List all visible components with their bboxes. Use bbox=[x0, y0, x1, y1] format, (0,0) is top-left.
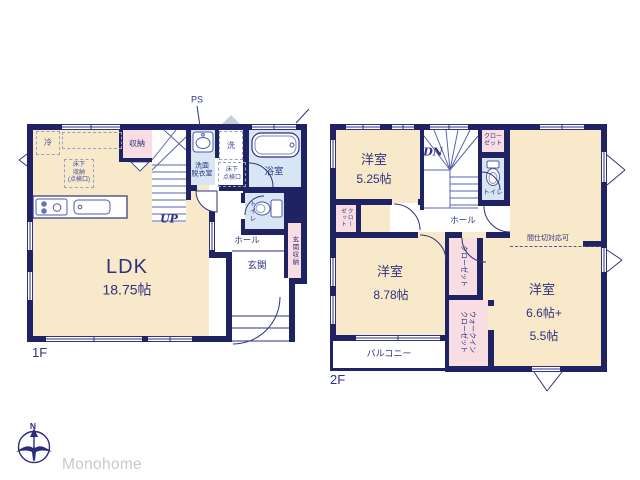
window bbox=[540, 124, 584, 130]
window bbox=[330, 296, 336, 324]
room2-name-label: 洋室 bbox=[377, 264, 403, 280]
wall bbox=[488, 330, 494, 366]
room3-size1-label: 6.6帖+ bbox=[526, 306, 562, 320]
window bbox=[601, 248, 607, 272]
walk-in-closet-label: ウォークイン クローゼット bbox=[459, 311, 476, 353]
balcony-label: バルコニー bbox=[367, 349, 412, 360]
room3-size2-label: 5.5帖 bbox=[530, 329, 559, 343]
window bbox=[430, 124, 468, 130]
wall bbox=[488, 300, 494, 306]
window bbox=[330, 140, 336, 168]
wall bbox=[446, 232, 462, 238]
closet-left-label: クロー ゼット bbox=[339, 208, 352, 228]
window bbox=[532, 366, 560, 372]
wall bbox=[477, 238, 483, 300]
floorplan-canvas: 冷 床下 収納 (点検口) 洗 床下 点検口 bbox=[0, 0, 640, 480]
floor-2-label: 2F bbox=[330, 372, 345, 387]
floor-2-plan: 洋室 5.25帖 DN クロー ゼット トイレ ホール クロー ゼット 洋室 8… bbox=[0, 0, 640, 480]
toilet-label-2f: トイレ bbox=[483, 189, 503, 197]
stairwell-2f bbox=[424, 130, 480, 208]
window bbox=[346, 124, 380, 130]
stairs-down-label: DN bbox=[423, 145, 443, 158]
room1-size-label: 5.25帖 bbox=[356, 172, 391, 186]
window bbox=[601, 152, 607, 182]
wall bbox=[445, 366, 607, 372]
wall bbox=[486, 232, 510, 238]
wall bbox=[478, 200, 504, 206]
compass-n-label: N bbox=[30, 421, 36, 431]
hall-label-2f: ホール bbox=[450, 215, 476, 225]
window bbox=[330, 258, 336, 286]
window bbox=[392, 124, 414, 130]
room2-size-label: 8.78帖 bbox=[373, 288, 408, 302]
partition-note-label: 間仕切対応可 bbox=[527, 235, 569, 243]
wall bbox=[449, 295, 477, 300]
balcony-door bbox=[356, 335, 440, 341]
wall bbox=[420, 130, 424, 210]
wall bbox=[478, 130, 482, 206]
closet-center-label: クローゼット bbox=[459, 245, 467, 287]
wall bbox=[330, 232, 418, 238]
room1-name-label: 洋室 bbox=[361, 152, 387, 168]
partition-dash-line bbox=[510, 246, 601, 247]
brand-logo: Monohome bbox=[62, 456, 142, 474]
closet-top-label: クロー ゼット bbox=[484, 134, 502, 148]
wall bbox=[356, 205, 361, 232]
wall bbox=[336, 199, 392, 205]
room3-name-label: 洋室 bbox=[529, 282, 555, 298]
wall bbox=[478, 152, 504, 158]
wall bbox=[504, 130, 510, 206]
